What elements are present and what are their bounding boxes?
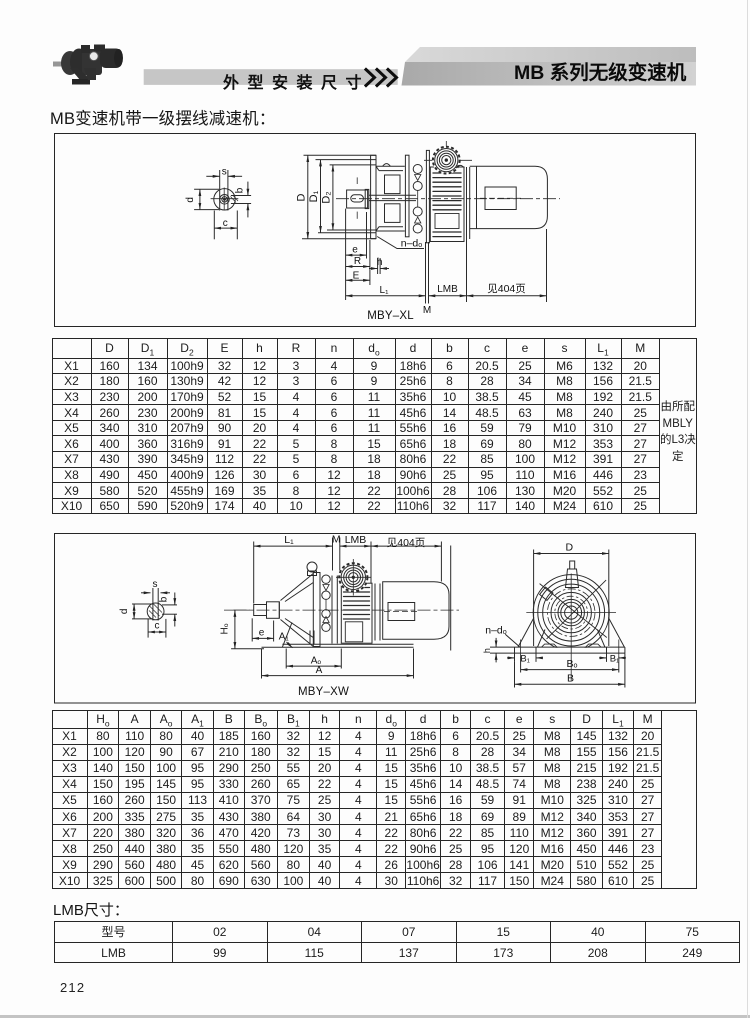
svg-text:n–dₒ: n–dₒ — [485, 624, 507, 636]
svg-text:d: d — [119, 608, 130, 614]
svg-text:D: D — [566, 541, 574, 553]
svg-text:c: c — [223, 218, 228, 229]
svg-text:h: h — [377, 257, 383, 268]
svg-text:M: M — [423, 305, 431, 316]
svg-text:e: e — [352, 244, 358, 255]
svg-text:A₁: A₁ — [279, 631, 290, 642]
svg-text:b: b — [234, 187, 245, 193]
svg-text:e: e — [259, 627, 265, 638]
svg-text:b: b — [159, 596, 170, 602]
svg-text:见404页: 见404页 — [387, 536, 426, 548]
svg-text:见404页: 见404页 — [487, 283, 526, 295]
svg-text:D: D — [295, 193, 307, 201]
svg-text:A: A — [316, 664, 323, 675]
svg-text:d: d — [185, 197, 196, 203]
svg-text:D₁: D₁ — [308, 190, 320, 202]
svg-text:R: R — [354, 256, 361, 267]
svg-text:L₁: L₁ — [284, 533, 294, 545]
svg-text:Hₒ: Hₒ — [220, 623, 231, 634]
svg-text:s: s — [222, 167, 227, 178]
svg-text:MBY–XL: MBY–XL — [367, 310, 414, 322]
svg-text:s: s — [153, 579, 158, 590]
svg-text:L₁: L₁ — [380, 285, 390, 296]
svg-text:MBY–XW: MBY–XW — [298, 686, 349, 698]
svg-text:B: B — [567, 672, 574, 684]
svg-text:h: h — [482, 648, 492, 653]
svg-text:B₁: B₁ — [610, 653, 620, 664]
svg-text:B₁: B₁ — [520, 653, 530, 664]
svg-text:D₂: D₂ — [320, 191, 332, 203]
svg-text:LMB: LMB — [437, 284, 458, 295]
svg-text:E: E — [353, 270, 360, 281]
svg-text:n–dₒ: n–dₒ — [401, 238, 423, 250]
svg-text:LMB: LMB — [345, 533, 367, 545]
svg-text:M: M — [332, 533, 341, 545]
svg-text:Bₒ: Bₒ — [567, 658, 578, 670]
svg-text:c: c — [155, 620, 160, 631]
